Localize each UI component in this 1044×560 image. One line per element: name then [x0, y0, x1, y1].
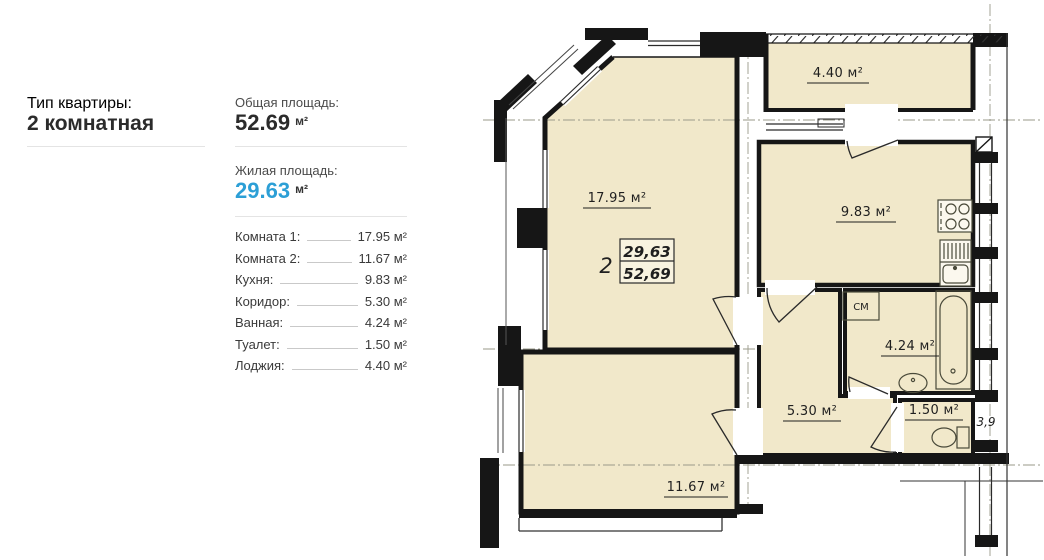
total-area-number: 52.69 [235, 110, 290, 135]
leader-line [307, 251, 351, 263]
room-value: 4.24 м² [365, 315, 407, 330]
loggia-parapet [766, 34, 1008, 43]
room-label: Туалет: [235, 337, 280, 352]
leader-line [307, 229, 350, 241]
divider [27, 146, 205, 147]
leader-line [280, 272, 357, 284]
divider [235, 146, 407, 147]
dimension-label: 3,9 [976, 415, 995, 429]
list-item: Лоджия:4.40 м² [235, 358, 407, 380]
stamp-number: 2 [599, 254, 612, 278]
room-value: 5.30 м² [365, 294, 407, 309]
corridor-area-label: 5.30 м² [787, 404, 837, 419]
total-area-label: Общая площадь: [235, 95, 339, 110]
room1-area-label: 17.95 м² [588, 191, 647, 206]
living-area-number: 29.63 [235, 178, 290, 203]
toilet-area-label: 1.50 м² [909, 403, 959, 418]
list-item: Туалет:1.50 м² [235, 337, 407, 359]
loggia-floor [766, 43, 973, 110]
living-area-value: 29.63м² [235, 178, 308, 204]
living-area-label: Жилая площадь: [235, 163, 338, 178]
floor-plan: 17.95 м² 4.40 м² 9.83 м² 4.24 м² 5.30 м²… [480, 0, 1044, 560]
room2-area-label: 11.67 м² [667, 480, 726, 495]
list-item: Комната 2:11.67 м² [235, 251, 407, 273]
kitchen-area-label: 9.83 м² [841, 205, 891, 220]
room-value: 4.40 м² [365, 358, 407, 373]
total-area-value: 52.69м² [235, 110, 308, 136]
right-facade [975, 33, 1007, 556]
apartment-card: Тип квартиры: 2 комнатная Общая площадь:… [0, 0, 1044, 560]
kitchen-fixtures [938, 200, 972, 286]
apartment-type-value: 2 комнатная [27, 112, 154, 136]
room-label: Лоджия: [235, 358, 285, 373]
bathroom-area-label: 4.24 м² [885, 339, 935, 354]
washer-label: СМ [853, 302, 869, 313]
room-value: 11.67 м² [359, 251, 407, 266]
living-area-unit: м² [295, 182, 308, 196]
room-value: 9.83 м² [365, 272, 407, 287]
leader-line [290, 315, 358, 327]
room-value: 17.95 м² [358, 229, 407, 244]
list-item: Ванная:4.24 м² [235, 315, 407, 337]
room-label: Комната 1: [235, 229, 300, 244]
room-label: Ванная: [235, 315, 283, 330]
divider [235, 216, 407, 217]
list-item: Комната 1:17.95 м² [235, 229, 407, 251]
room-label: Коридор: [235, 294, 290, 309]
list-item: Коридор:5.30 м² [235, 294, 407, 316]
room-label: Комната 2: [235, 251, 300, 266]
apartment-type-label: Тип квартиры: [27, 95, 132, 113]
leader-line [292, 358, 358, 370]
stamp-living-area: 29,63 [623, 243, 670, 261]
leader-line [297, 294, 358, 306]
rooms-list: Комната 1:17.95 м² Комната 2:11.67 м² Ку… [235, 229, 407, 380]
room-value: 1.50 м² [365, 337, 407, 352]
list-item: Кухня:9.83 м² [235, 272, 407, 294]
room-label: Кухня: [235, 272, 273, 287]
stamp-total-area: 52,69 [623, 265, 670, 283]
loggia-area-label: 4.40 м² [813, 66, 863, 81]
leader-line [287, 337, 358, 349]
total-area-unit: м² [295, 114, 308, 128]
